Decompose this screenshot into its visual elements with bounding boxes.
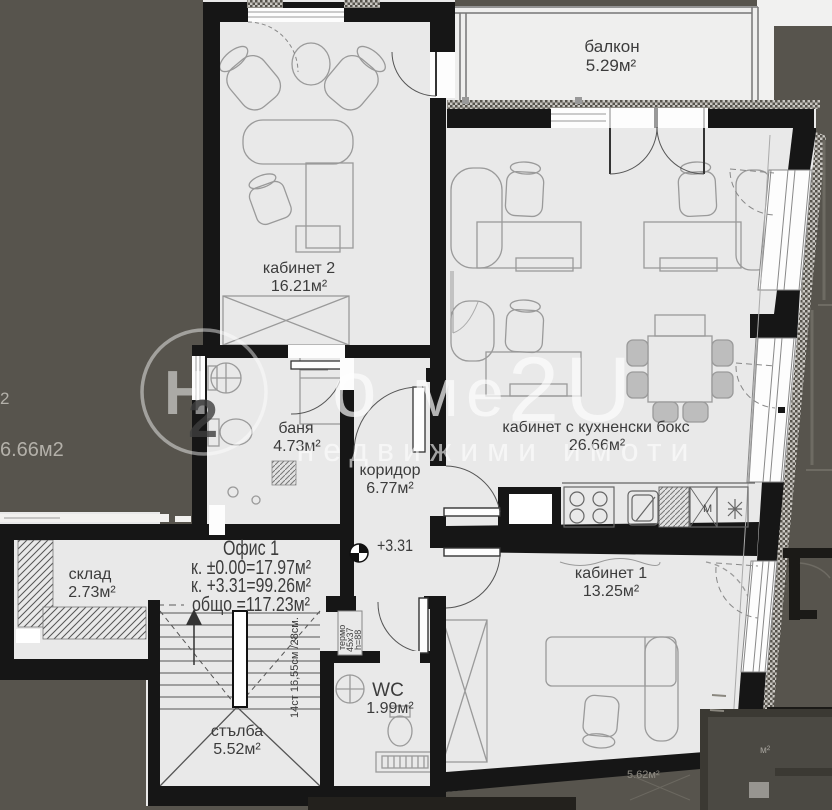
svg-text:5.52м²: 5.52м² [213,741,261,758]
svg-text:WC: WC [372,680,404,701]
svg-text:o: o [332,344,377,433]
svg-text:5.62м²: 5.62м² [627,769,660,781]
svg-text:5.29м²: 5.29м² [586,56,637,75]
svg-text:стълба: стълба [211,723,263,740]
svg-text:13.25м²: 13.25м² [583,583,640,600]
svg-text:h=88: h=88 [353,630,363,650]
svg-text:M: M [703,503,712,515]
svg-text:склад: склад [69,566,112,583]
svg-text:U: U [565,339,631,441]
svg-text:е: е [466,355,504,431]
svg-text:2: 2 [188,389,218,449]
svg-text:недвижими имоти: недвижими имоти [297,432,698,468]
svg-text:кабинет 2: кабинет 2 [263,260,335,277]
svg-text:балкон: балкон [584,37,639,56]
svg-text:2.73м²: 2.73м² [68,584,116,601]
svg-text:кабинет 1: кабинет 1 [575,565,647,582]
svg-text:16.21м²: 16.21м² [271,278,328,295]
svg-text:2: 2 [0,389,9,408]
svg-text:6.77м²: 6.77м² [366,480,414,497]
svg-text:м²: м² [760,745,771,756]
svg-text:м: м [412,355,459,431]
svg-text:14ст 16,55см /28см.: 14ст 16,55см /28см. [289,617,301,718]
svg-text:общо =117.23м²: общо =117.23м² [192,594,310,616]
svg-text:1.99м²: 1.99м² [366,700,414,717]
svg-text:6.66м2: 6.66м2 [0,439,64,461]
svg-text:2: 2 [508,339,559,441]
svg-text:+3.31: +3.31 [377,536,413,555]
